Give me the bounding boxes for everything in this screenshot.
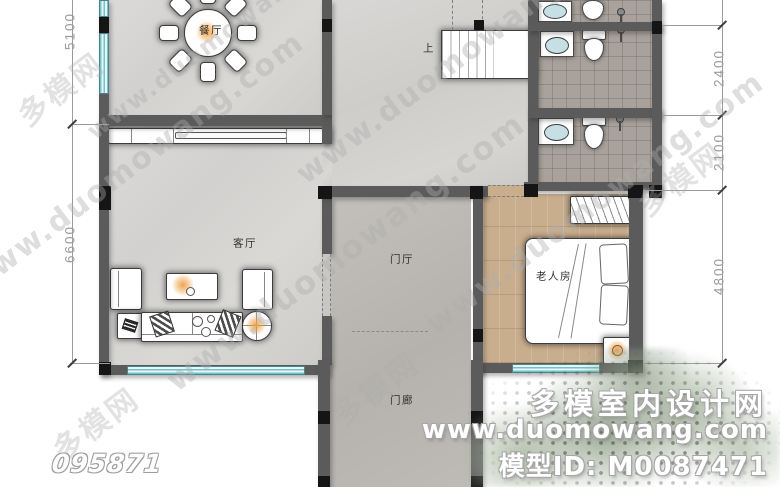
wall-foyer-top (322, 186, 488, 197)
floor-plan-image: 上 (0, 0, 780, 487)
bed-pillow (599, 243, 629, 284)
sink-basin (544, 124, 569, 141)
magazine (122, 318, 139, 333)
sofa-cushion (201, 327, 211, 337)
living-foyer-opening (322, 254, 331, 316)
column (99, 15, 109, 33)
wall-bath-divider-1 (528, 22, 662, 31)
dining-chair (200, 0, 216, 4)
extension-line (662, 115, 722, 116)
cup (186, 287, 195, 296)
foyer-threshold-dash (352, 331, 428, 332)
dimension-line-left (72, 0, 73, 363)
window-left-b (99, 33, 109, 94)
wall-bedroom-right (629, 186, 643, 373)
dimension-label-6600: 6600 (63, 225, 78, 263)
wall-bedroom-left (473, 186, 483, 373)
dining-chair (200, 62, 216, 82)
column (652, 21, 662, 34)
bathroom-sink (540, 31, 574, 57)
console-divider (173, 129, 174, 143)
room-label-porch: 门廊 (390, 393, 414, 408)
column (318, 411, 330, 424)
bathroom-sink (538, 1, 572, 22)
armchair (110, 268, 142, 310)
wall-living-right-a (322, 126, 332, 144)
column (649, 185, 662, 198)
dining-chair (159, 25, 179, 41)
column (474, 20, 484, 30)
column (524, 184, 538, 197)
dimension-label-2400: 2400 (712, 49, 727, 87)
bathroom-sink (538, 118, 574, 145)
sofa-cushion (207, 315, 215, 323)
sofa-end-table (117, 313, 143, 339)
watermark-stamp: 多模网 (7, 40, 113, 135)
branding-site-url: www.duomowang.com (422, 415, 768, 445)
window-left-a (99, 0, 109, 17)
extension-line (72, 124, 109, 125)
column (628, 185, 643, 198)
stair-dash-line (452, 0, 453, 30)
side-table-glow (246, 315, 266, 335)
dimension-label-2100: 2100 (712, 133, 727, 171)
wardrobe (570, 196, 632, 224)
extension-line (662, 25, 722, 26)
column (99, 186, 111, 210)
bed-fold-line (558, 244, 579, 338)
column (470, 186, 483, 199)
armchair (242, 269, 273, 310)
dimension-label-5100: 5100 (63, 12, 78, 50)
stairs (441, 30, 535, 79)
passage-floor (322, 144, 332, 186)
stair-treads (442, 31, 494, 78)
console-divider (286, 129, 287, 143)
sofa-cushion (192, 316, 203, 327)
console-divider (309, 129, 310, 143)
stairs-up-label: 上 (423, 41, 435, 56)
branding-model-id: 模型ID: M0087471 (499, 446, 768, 483)
window-living (127, 366, 305, 375)
room-label-elderly: 老人房 (536, 269, 572, 284)
extension-line (70, 363, 110, 364)
tv (175, 132, 287, 139)
room-label-living: 客厅 (233, 236, 257, 251)
plan-id: 095871 (50, 449, 163, 478)
tv-console (108, 128, 331, 144)
column (473, 329, 483, 342)
column (318, 476, 330, 487)
wall-bath-divider-2 (528, 108, 662, 118)
console-divider (131, 129, 132, 143)
sink-basin (545, 37, 569, 54)
column (322, 19, 332, 32)
bed-pillow (599, 284, 629, 325)
armchair-back (118, 271, 119, 307)
bedroom-door-opening (488, 185, 524, 197)
armchair-back (264, 272, 265, 307)
column (318, 186, 332, 199)
room-label-foyer: 门厅 (390, 252, 414, 267)
wall-living-right-c (322, 316, 332, 365)
wall-dining-bottom (99, 115, 332, 126)
sink-basin (543, 4, 567, 19)
dimension-label-4800: 4800 (712, 257, 727, 295)
extension-line (643, 190, 722, 191)
dining-chair (237, 25, 257, 41)
bed (525, 238, 633, 344)
bed-fold-line (570, 244, 586, 339)
stair-hall-floor (332, 0, 528, 186)
wall-dining-right (322, 0, 332, 115)
room-label-dining: 餐厅 (199, 23, 223, 38)
wall-living-right-b (322, 197, 332, 254)
